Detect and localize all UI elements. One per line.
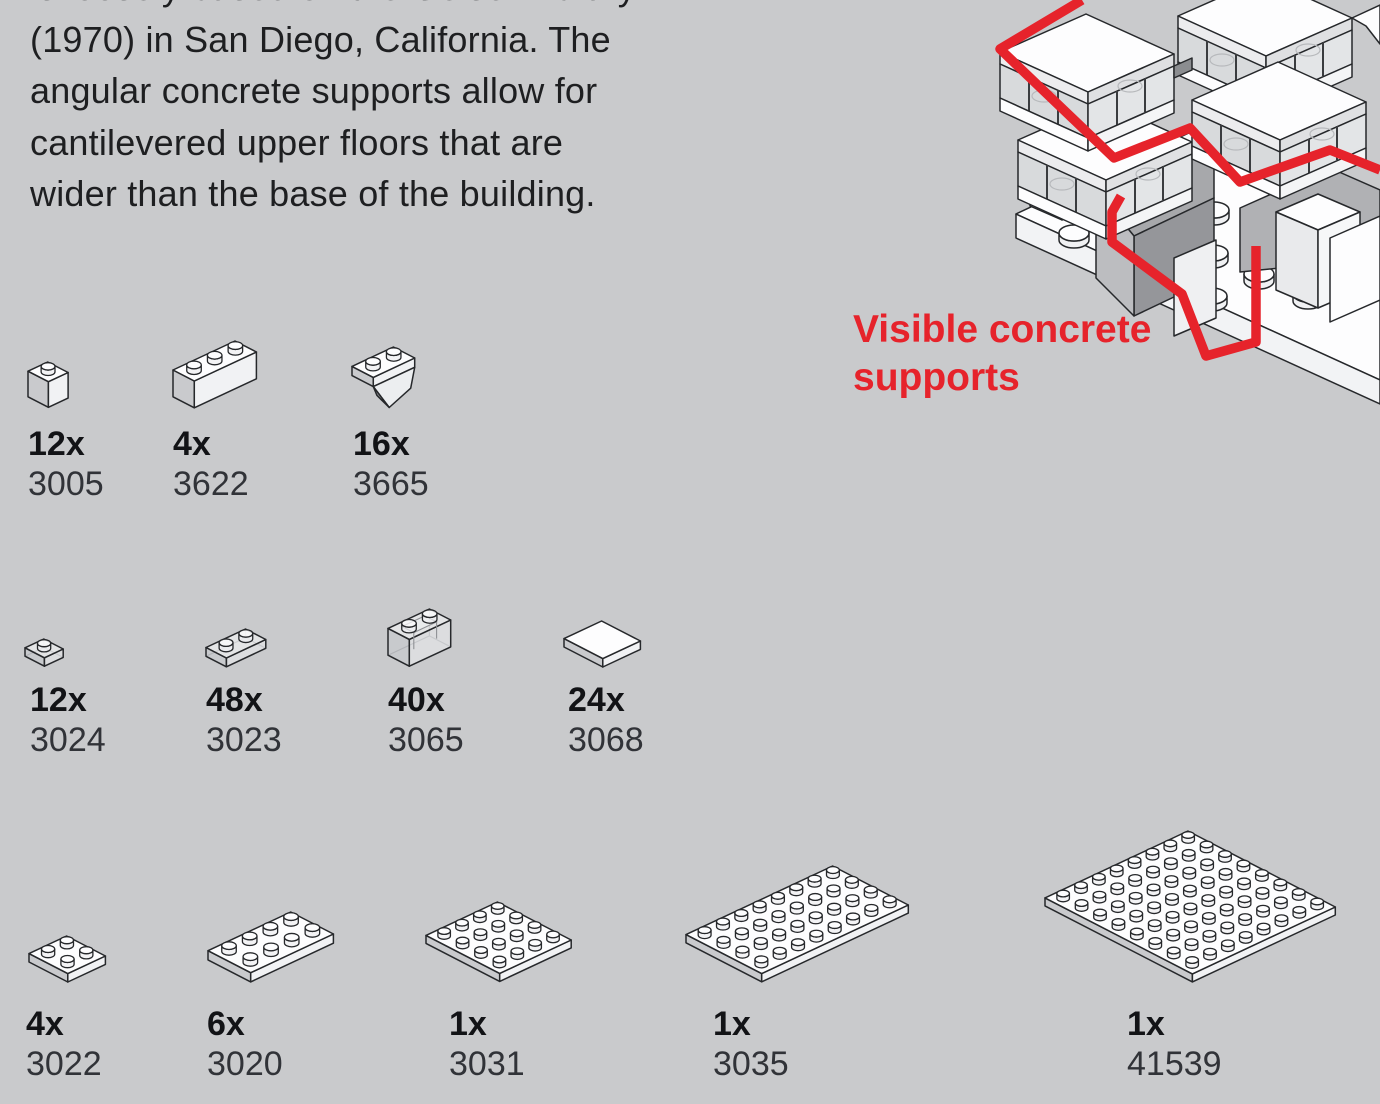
part-number: 3035 bbox=[713, 1045, 789, 1084]
part-image-3665 bbox=[349, 344, 418, 411]
part-quantity: 40x bbox=[388, 681, 445, 720]
part-number: 3665 bbox=[353, 465, 429, 504]
description-text: is loosely based on the Geisel Library (… bbox=[30, 0, 636, 220]
part-quantity: 48x bbox=[206, 681, 263, 720]
part-number: 3065 bbox=[388, 721, 464, 760]
part-number: 3622 bbox=[173, 465, 249, 504]
part-quantity: 4x bbox=[26, 1005, 64, 1044]
part-quantity: 24x bbox=[568, 681, 625, 720]
part-quantity: 1x bbox=[449, 1005, 487, 1044]
part-image-3622 bbox=[170, 338, 260, 411]
part-quantity: 12x bbox=[30, 681, 87, 720]
part-image-3005 bbox=[25, 359, 72, 411]
part-image-3020 bbox=[205, 909, 337, 985]
part-image-41539 bbox=[1042, 828, 1339, 985]
part-number: 3031 bbox=[449, 1045, 525, 1084]
part-number: 3005 bbox=[28, 465, 104, 504]
part-image-3031 bbox=[423, 899, 575, 985]
part-quantity: 4x bbox=[173, 425, 211, 464]
part-quantity: 6x bbox=[207, 1005, 245, 1044]
part-number: 3068 bbox=[568, 721, 644, 760]
part-number: 3024 bbox=[30, 721, 106, 760]
part-number: 3023 bbox=[206, 721, 282, 760]
part-image-3035 bbox=[683, 863, 912, 985]
building-illustration bbox=[978, 0, 1380, 455]
part-number: 3022 bbox=[26, 1045, 102, 1084]
part-image-3023 bbox=[203, 626, 269, 670]
part-quantity: 16x bbox=[353, 425, 410, 464]
part-image-3024 bbox=[22, 636, 67, 670]
part-quantity: 1x bbox=[1127, 1005, 1165, 1044]
part-number: 41539 bbox=[1127, 1045, 1222, 1084]
part-image-3068 bbox=[561, 618, 644, 670]
part-quantity: 12x bbox=[28, 425, 85, 464]
part-quantity: 1x bbox=[713, 1005, 751, 1044]
part-number: 3020 bbox=[207, 1045, 283, 1084]
book-page: is loosely based on the Geisel Library (… bbox=[0, 0, 1380, 1104]
part-image-3065 bbox=[385, 606, 454, 670]
part-image-3022 bbox=[26, 933, 109, 985]
